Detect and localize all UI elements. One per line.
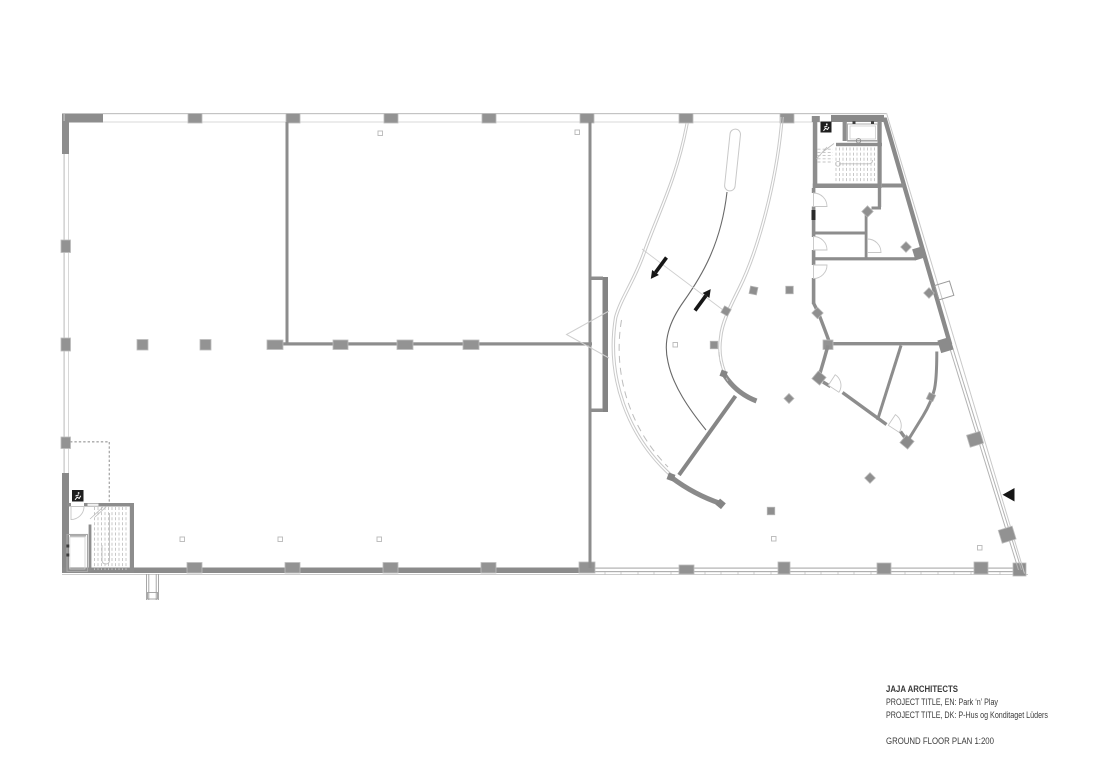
- svg-text:GROUND FLOOR PLAN 1:200: GROUND FLOOR PLAN 1:200: [886, 736, 994, 746]
- svg-text:PROJECT TITLE, EN: Park ‘n’ Pl: PROJECT TITLE, EN: Park ‘n’ Play: [886, 697, 998, 707]
- svg-text:JAJA ARCHITECTS: JAJA ARCHITECTS: [886, 684, 958, 694]
- svg-text:PROJECT TITLE, DK: P-Hus og Ko: PROJECT TITLE, DK: P-Hus og Konditaget L…: [886, 710, 1048, 720]
